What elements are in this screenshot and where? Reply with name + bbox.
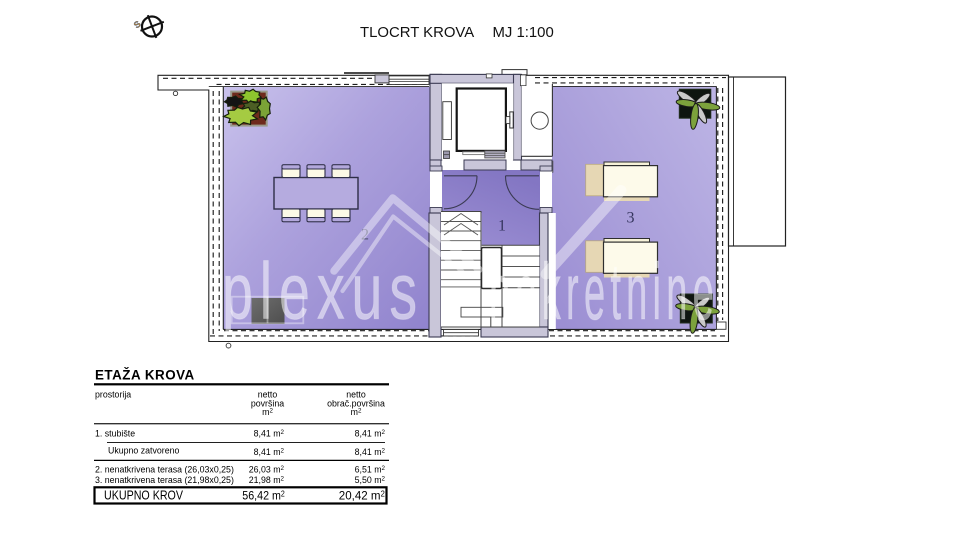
svg-text:plexus: plexus <box>222 246 424 335</box>
svg-text:nekretnine: nekretnine <box>489 247 719 336</box>
svg-text:1: 1 <box>498 218 506 235</box>
svg-text:8,41 m2: 8,41 m2 <box>355 428 386 438</box>
svg-text:26,03 m2: 26,03 m2 <box>249 464 285 474</box>
svg-text:m2: m2 <box>351 407 362 417</box>
svg-text:MJ 1:100: MJ 1:100 <box>493 25 554 41</box>
svg-text:8,41 m2: 8,41 m2 <box>355 447 386 457</box>
svg-text:TLOCRT KROVA: TLOCRT KROVA <box>360 25 474 41</box>
svg-text:8,41 m2: 8,41 m2 <box>254 428 285 438</box>
svg-text:S: S <box>132 19 143 31</box>
svg-text:21,98 m2: 21,98 m2 <box>249 475 285 485</box>
svg-text:56,42 m2: 56,42 m2 <box>242 488 285 502</box>
svg-text:3: 3 <box>627 210 635 227</box>
svg-text:2. nenatkrivena terasa (26,03x: 2. nenatkrivena terasa (26,03x0,25) <box>95 464 234 474</box>
svg-text:ETAŽA KROVA: ETAŽA KROVA <box>95 368 195 383</box>
svg-text:20,42 m2: 20,42 m2 <box>339 488 386 502</box>
svg-text:3. nenatkrivena terasa (21,98x: 3. nenatkrivena terasa (21,98x0,25) <box>95 475 234 485</box>
svg-text:5,50 m2: 5,50 m2 <box>355 475 386 485</box>
svg-text:UKUPNO KROV: UKUPNO KROV <box>104 488 184 502</box>
svg-text:prostorija: prostorija <box>95 390 131 400</box>
svg-text:6,51 m2: 6,51 m2 <box>355 464 386 474</box>
svg-text:m2: m2 <box>262 407 273 417</box>
svg-text:Ukupno zatvoreno: Ukupno zatvoreno <box>108 446 180 456</box>
svg-text:1. stubište: 1. stubište <box>95 428 135 438</box>
svg-text:8,41 m2: 8,41 m2 <box>254 447 285 457</box>
